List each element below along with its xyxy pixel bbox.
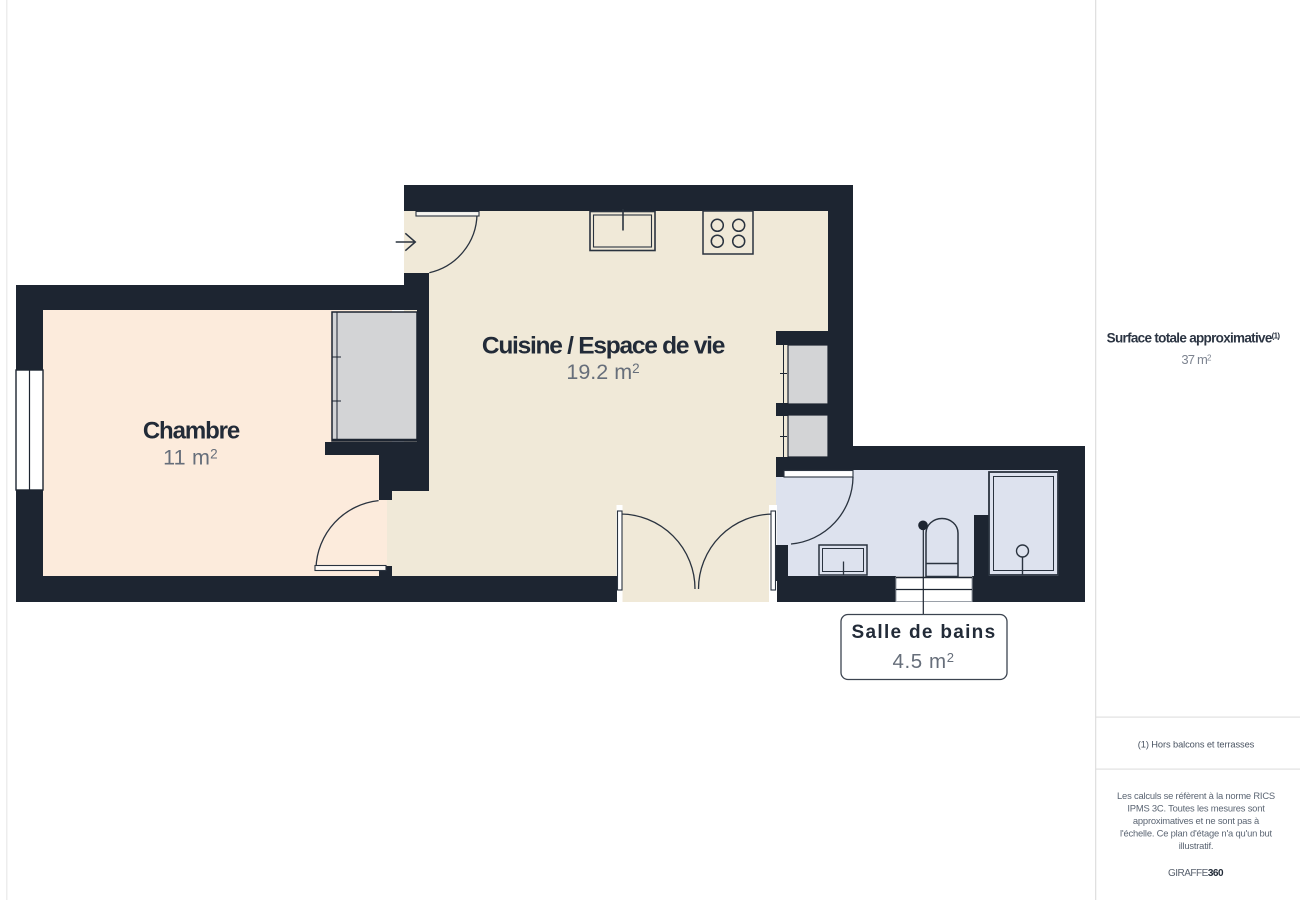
svg-text:Chambre: Chambre	[143, 418, 240, 445]
svg-text:4.5 m2: 4.5 m2	[892, 650, 954, 673]
svg-text:Cuisine / Espace de vie: Cuisine / Espace de vie	[482, 333, 725, 360]
svg-text:l'échelle. Ce plan d'étage n'a: l'échelle. Ce plan d'étage n'a qu'un but	[1120, 828, 1272, 839]
svg-text:GIRAFFE360: GIRAFFE360	[1168, 868, 1224, 879]
svg-text:Salle de bains: Salle de bains	[852, 622, 997, 643]
svg-text:Surface totale approximative(1: Surface totale approximative(1)	[1107, 331, 1281, 346]
svg-text:11 m2: 11 m2	[163, 446, 218, 470]
svg-text:IPMS 3C. Toutes les mesures so: IPMS 3C. Toutes les mesures sont	[1127, 803, 1265, 814]
svg-text:Les calculs se réfèrent à la n: Les calculs se réfèrent à la norme RICS	[1117, 790, 1275, 801]
svg-text:(1) Hors balcons et terrasses: (1) Hors balcons et terrasses	[1138, 740, 1255, 750]
svg-text:19.2 m2: 19.2 m2	[566, 360, 639, 384]
svg-text:approximatives et ne sont pas: approximatives et ne sont pas à	[1133, 815, 1260, 826]
svg-text:illustratif.: illustratif.	[1179, 840, 1214, 851]
